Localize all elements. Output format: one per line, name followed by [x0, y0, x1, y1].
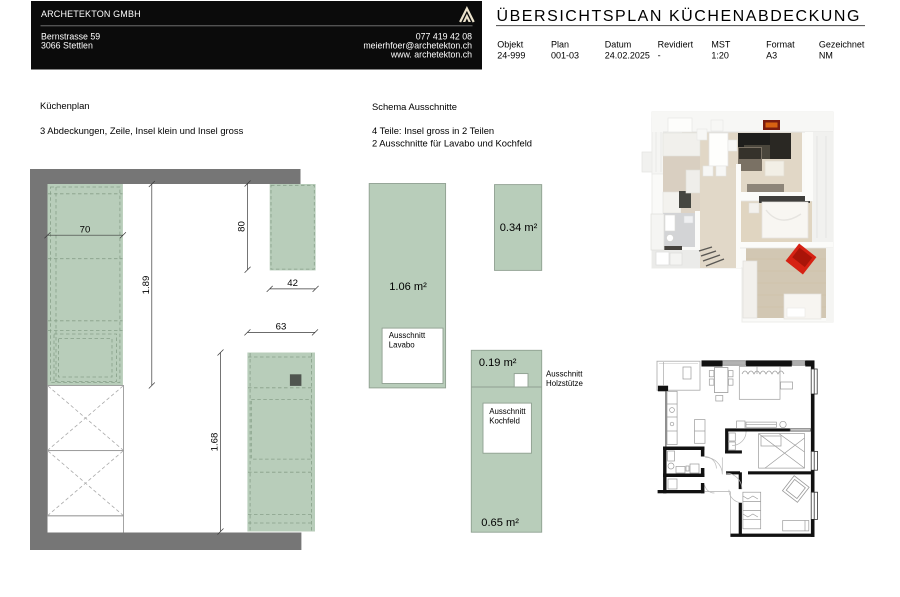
svg-text:ÜBERSICHTSPLAN KÜCHENABDECKUNG: ÜBERSICHTSPLAN KÜCHENABDECKUNG: [497, 7, 861, 25]
svg-text:Lavabo: Lavabo: [389, 341, 415, 350]
svg-text:3066 Stettlen: 3066 Stettlen: [41, 40, 93, 50]
svg-text:Schema Ausschnitte: Schema Ausschnitte: [372, 101, 457, 112]
svg-text:63: 63: [276, 322, 287, 333]
svg-text:24.02.2025: 24.02.2025: [605, 50, 650, 60]
svg-text:0.65 m²: 0.65 m²: [481, 517, 519, 529]
svg-text:0.19 m²: 0.19 m²: [479, 357, 517, 369]
svg-text:ARCHETEKTON GMBH: ARCHETEKTON GMBH: [41, 9, 141, 19]
svg-text:www. archetekton.ch: www. archetekton.ch: [390, 49, 472, 59]
svg-text:1:20: 1:20: [711, 50, 729, 60]
svg-text:Gezeichnet: Gezeichnet: [819, 40, 865, 50]
svg-text:Kochfeld: Kochfeld: [489, 416, 520, 425]
svg-text:Plan: Plan: [551, 40, 569, 50]
svg-text:80: 80: [237, 221, 248, 232]
svg-text:Ausschnitt: Ausschnitt: [546, 370, 583, 379]
svg-text:Format: Format: [766, 40, 795, 50]
svg-text:24-999: 24-999: [497, 50, 525, 60]
svg-text:4 Teile: Insel gross in 2 Teil: 4 Teile: Insel gross in 2 Teilen: [372, 125, 494, 136]
svg-text:0.34 m²: 0.34 m²: [500, 222, 538, 234]
svg-text:Objekt: Objekt: [497, 40, 524, 50]
svg-text:-: -: [658, 50, 661, 60]
svg-text:70: 70: [80, 225, 91, 236]
svg-text:Holzstütze: Holzstütze: [546, 379, 583, 388]
svg-text:42: 42: [287, 278, 298, 289]
svg-text:3 Abdeckungen, Zeile, Insel kl: 3 Abdeckungen, Zeile, Insel klein und In…: [40, 125, 244, 136]
svg-text:1.06 m²: 1.06 m²: [389, 281, 427, 293]
svg-text:Revidiert: Revidiert: [658, 40, 694, 50]
svg-text:Datum: Datum: [605, 40, 632, 50]
svg-text:2 Ausschnitte für Lavabo und K: 2 Ausschnitte für Lavabo und Kochfeld: [372, 138, 532, 149]
svg-text:Ausschnitt: Ausschnitt: [389, 331, 426, 340]
svg-text:Ausschnitt: Ausschnitt: [489, 407, 526, 416]
svg-text:NM: NM: [819, 50, 833, 60]
svg-text:Küchenplan: Küchenplan: [40, 100, 90, 111]
svg-text:1.68: 1.68: [210, 433, 221, 452]
svg-text:MST: MST: [711, 40, 731, 50]
svg-text:001-03: 001-03: [551, 50, 579, 60]
svg-text:A3: A3: [766, 50, 777, 60]
svg-text:1.89: 1.89: [141, 276, 152, 295]
